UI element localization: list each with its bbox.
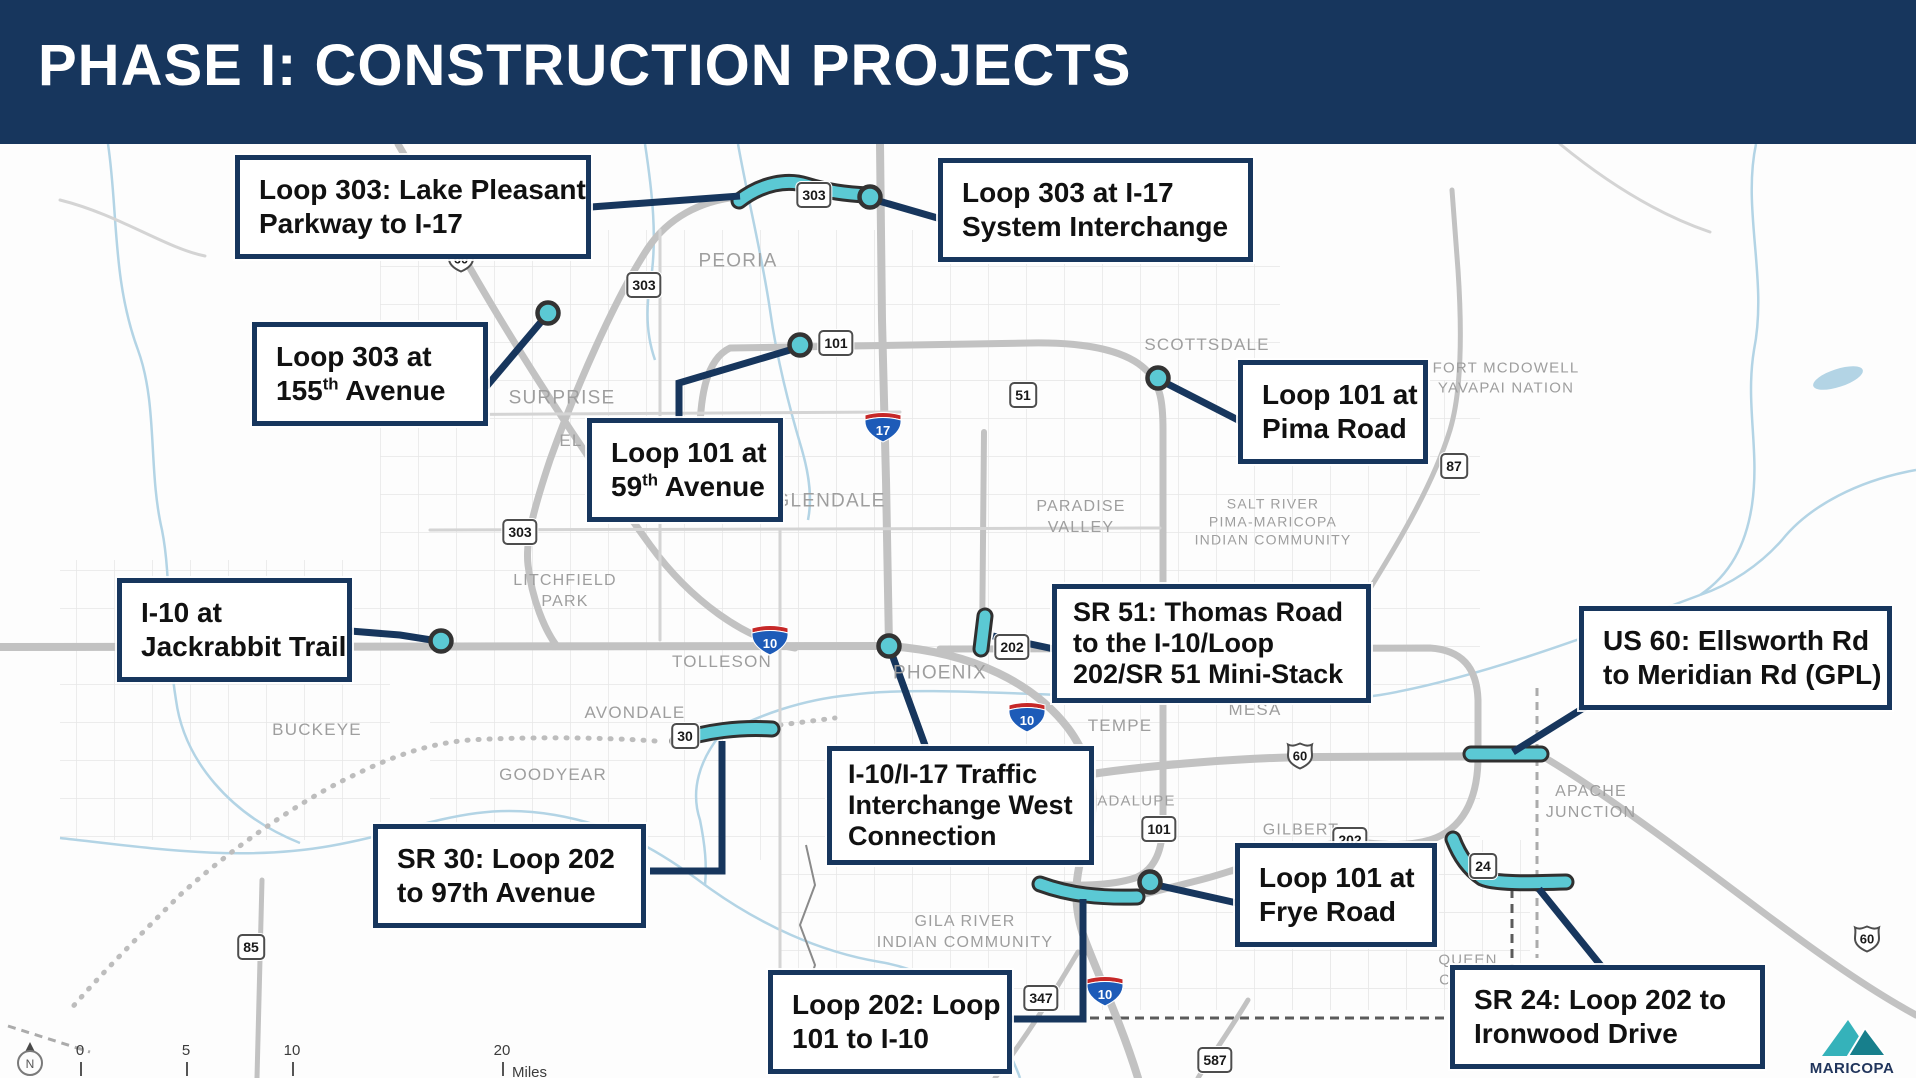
- state-route-shield-303: 303: [796, 187, 831, 205]
- state-route-shield-101: 101: [1141, 821, 1176, 839]
- callout-line: I-10/I-17 Traffic: [848, 759, 1073, 790]
- callout-line: to 97th Avenue: [397, 876, 622, 910]
- interstate-route-shield-10: 10: [1007, 700, 1047, 738]
- map-label: TEMPE: [1088, 715, 1153, 737]
- callout-line: SR 51: Thomas Road: [1073, 597, 1350, 628]
- callout-i10-i17-west-connection: I-10/I-17 TrafficInterchange WestConnect…: [827, 746, 1094, 865]
- callout-sr30-loop202-97th: SR 30: Loop 202to 97th Avenue: [373, 824, 646, 928]
- callout-line: Loop 202: Loop: [792, 988, 988, 1022]
- interstate-route-shield-17: 17: [863, 410, 903, 448]
- scale-tick: [186, 1062, 188, 1076]
- title-bar: PHASE I: CONSTRUCTION PROJECTS: [0, 0, 1916, 144]
- callout-line: Loop 101 at: [1262, 378, 1404, 412]
- callout-line: Loop 303: Lake Pleasant: [259, 173, 567, 207]
- callout-line: Loop 303 at I-17: [962, 176, 1229, 210]
- callout-loop101-59th-ave: Loop 101 at59th Avenue: [587, 418, 783, 522]
- scale-bar: Miles 051020: [0, 1036, 560, 1078]
- callout-sr24-loop202-ironwood: SR 24: Loop 202 toIronwood Drive: [1450, 965, 1765, 1069]
- svg-text:10: 10: [1098, 987, 1112, 1002]
- callout-line: 155th Avenue: [276, 374, 464, 408]
- callout-line: SR 24: Loop 202 to: [1474, 983, 1741, 1017]
- scale-tick: [502, 1062, 504, 1076]
- map-label: GILA RIVER INDIAN COMMUNITY: [877, 912, 1054, 954]
- map-label: GILBERT: [1263, 821, 1340, 842]
- callout-loop202-101-to-i10: Loop 202: Loop101 to I-10: [768, 970, 1012, 1074]
- maricopa-association-logo: MARICOPA ASSOCIATION of: [1788, 1014, 1916, 1078]
- map-label: SCOTTSDALE: [1144, 334, 1269, 356]
- us-route-shield-60: 60: [1851, 922, 1883, 959]
- callout-line: Loop 101 at: [611, 436, 759, 470]
- state-route-shield-30: 30: [671, 728, 699, 746]
- map-label: GLENDALE: [775, 490, 886, 515]
- interstate-route-shield-10: 10: [750, 623, 790, 661]
- callout-line: Ironwood Drive: [1474, 1017, 1741, 1051]
- callout-line: I-10 at: [141, 596, 328, 630]
- state-route-shield-202: 202: [994, 639, 1029, 657]
- map-label: PEORIA: [699, 250, 778, 275]
- callout-line: Loop 101 at: [1259, 861, 1413, 895]
- callout-line: Jackrabbit Trail: [141, 630, 328, 664]
- svg-text:60: 60: [1293, 749, 1307, 764]
- phase1-construction-projects-map: PHASE I: CONSTRUCTION PROJECTS PEORIASUR…: [0, 0, 1916, 1078]
- callout-i10-jackrabbit-trail: I-10 atJackrabbit Trail: [117, 578, 352, 682]
- state-route-shield-303: 303: [626, 277, 661, 295]
- mountains-logo-icon: [1810, 1014, 1894, 1056]
- state-route-shield-24: 24: [1469, 858, 1497, 876]
- callout-line: US 60: Ellsworth Rd: [1603, 624, 1868, 658]
- state-route-shield-87: 87: [1440, 458, 1468, 476]
- state-route-shield-587: 587: [1197, 1052, 1232, 1070]
- svg-text:10: 10: [763, 636, 777, 651]
- page-title: PHASE I: CONSTRUCTION PROJECTS: [0, 0, 1916, 98]
- scale-number: 20: [494, 1042, 511, 1059]
- map-label: APACHE JUNCTION: [1546, 782, 1636, 824]
- callout-line: Loop 303 at: [276, 340, 464, 374]
- callout-line: Pima Road: [1262, 412, 1404, 446]
- map-label: BUCKEYE: [272, 719, 362, 741]
- callout-loop101-pima-road: Loop 101 atPima Road: [1238, 360, 1428, 464]
- map-label: LITCHFIELD PARK: [513, 571, 617, 613]
- map-label: GOODYEAR: [499, 764, 607, 786]
- state-route-shield-101: 101: [818, 335, 853, 353]
- callout-loop303-i17-interchange: Loop 303 at I-17System Interchange: [938, 158, 1253, 262]
- scale-tick: [292, 1062, 294, 1076]
- callout-line: to the I-10/Loop: [1073, 628, 1350, 659]
- map-label: PARADISE VALLEY: [1036, 497, 1125, 539]
- callout-line: to Meridian Rd (GPL): [1603, 658, 1868, 692]
- callout-line: 202/SR 51 Mini-Stack: [1073, 659, 1350, 690]
- state-route-shield-51: 51: [1009, 387, 1037, 405]
- callout-line: 101 to I-10: [792, 1022, 988, 1056]
- callout-line: Interchange West: [848, 790, 1073, 821]
- callout-line: Parkway to I-17: [259, 207, 567, 241]
- interstate-route-shield-10: 10: [1085, 974, 1125, 1012]
- map-label: AVONDALE: [585, 702, 686, 724]
- callout-loop303-155th-ave: Loop 303 at155th Avenue: [252, 322, 488, 426]
- callout-line: SR 30: Loop 202: [397, 842, 622, 876]
- state-route-shield-85: 85: [237, 939, 265, 957]
- state-route-shield-303: 303: [502, 524, 537, 542]
- scale-number: 10: [284, 1042, 301, 1059]
- callout-loop101-frye-road: Loop 101 atFrye Road: [1235, 843, 1437, 947]
- scale-tick: [80, 1062, 82, 1076]
- logo-line1: MARICOPA: [1788, 1061, 1916, 1078]
- map-label: EL: [559, 430, 582, 452]
- scale-number: 5: [182, 1042, 190, 1059]
- state-route-shield-347: 347: [1023, 990, 1058, 1008]
- callout-loop303-lake-pleasant: Loop 303: Lake PleasantParkway to I-17: [235, 155, 591, 259]
- callout-us60-ellsworth-meridian: US 60: Ellsworth Rdto Meridian Rd (GPL): [1579, 606, 1892, 710]
- svg-text:17: 17: [876, 423, 890, 438]
- callout-line: Connection: [848, 821, 1073, 852]
- svg-text:10: 10: [1020, 713, 1034, 728]
- callout-sr51-thomas-road: SR 51: Thomas Roadto the I-10/Loop202/SR…: [1052, 584, 1371, 703]
- map-label: SALT RIVER PIMA-MARICOPA INDIAN COMMUNIT…: [1195, 495, 1352, 550]
- callout-line: System Interchange: [962, 210, 1229, 244]
- map-label: SURPRISE: [509, 387, 616, 412]
- scale-number: 0: [76, 1042, 84, 1059]
- map-label: PHOENIX: [893, 662, 987, 687]
- callout-line: Frye Road: [1259, 895, 1413, 929]
- map-label: FORT MCDOWELL YAVAPAI NATION: [1433, 359, 1580, 398]
- callout-line: 59th Avenue: [611, 470, 759, 504]
- svg-text:60: 60: [1860, 932, 1874, 947]
- scale-unit-label: Miles: [512, 1064, 547, 1078]
- us-route-shield-60: 60: [1284, 739, 1316, 776]
